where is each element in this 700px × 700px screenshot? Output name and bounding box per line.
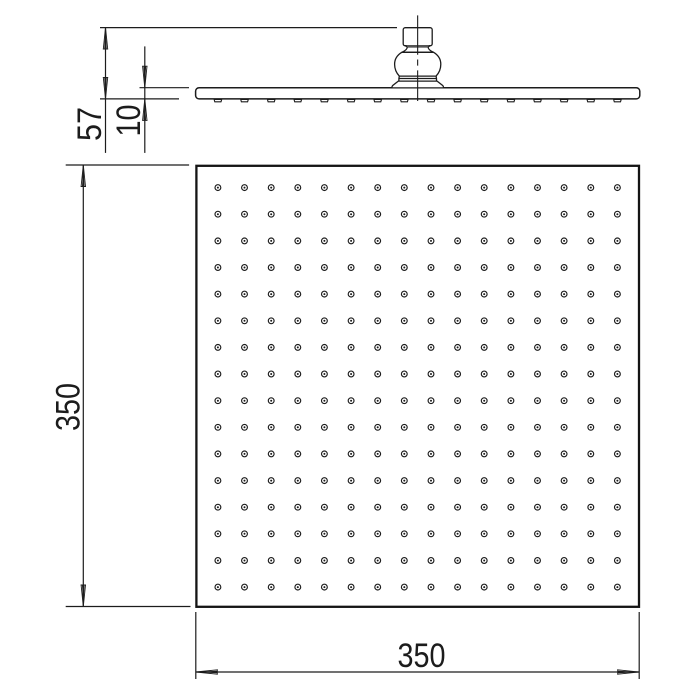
svg-text:57: 57 [71,107,109,141]
svg-text:350: 350 [398,637,446,675]
svg-text:350: 350 [50,383,88,431]
svg-text:10: 10 [110,105,148,137]
